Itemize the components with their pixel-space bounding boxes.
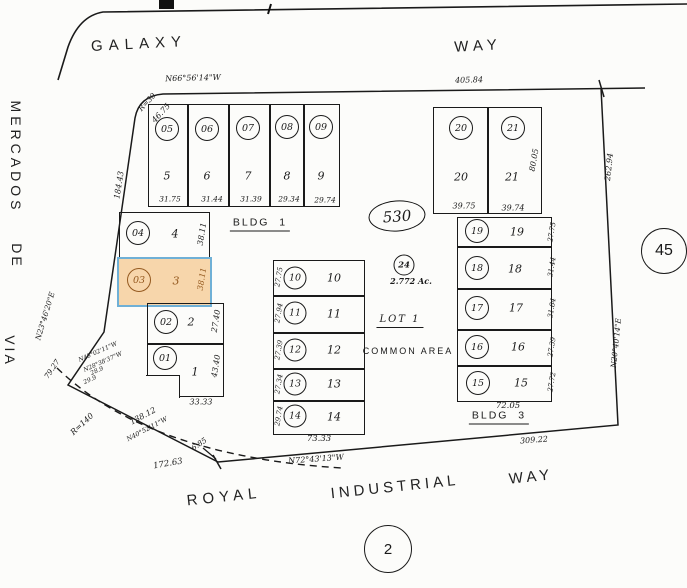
parcel-03-number: 3: [173, 275, 180, 288]
parcel-01-notch: [146, 375, 180, 398]
street-mercados: MERCADOS: [8, 101, 24, 214]
parcel-05-number: 5: [164, 170, 171, 183]
parcel-01-number: 1: [192, 366, 199, 379]
parcel-13-tag: 13: [284, 373, 307, 396]
parcel-11-number: 11: [327, 308, 341, 321]
parcel-01-tag: 01: [153, 346, 177, 370]
parcel-04-tag: 04: [126, 221, 150, 245]
parcel-04-number: 4: [172, 228, 179, 241]
page-ref-2: 2: [384, 541, 392, 558]
adjacent-map-45-circle: 45: [641, 228, 687, 274]
parcel-08-dim: 29.34: [278, 195, 299, 204]
parcel-10-number: 10: [327, 272, 341, 285]
parcel-16-number: 16: [511, 341, 525, 354]
parcel-15-number: 15: [514, 377, 528, 390]
block-b-bottom-dim: 73.33: [307, 434, 331, 444]
parcel-21-tag: 21: [501, 116, 525, 140]
parcel-15-tag: 15: [466, 371, 490, 395]
parcel-12-tag: 12: [284, 339, 307, 362]
parcel-05-dim: 31.75: [159, 195, 180, 204]
parcel-map: GALAXY WAY MERCADOS DE VIA ROYAL INDUSTR…: [0, 0, 687, 588]
common-area-label: COMMON AREA: [363, 346, 454, 356]
parcel-06-number: 6: [204, 170, 211, 183]
parcel-12-number: 12: [327, 344, 341, 357]
map-mark-square: [159, 0, 174, 9]
parcel-09-number: 9: [318, 170, 325, 183]
street-de: DE: [9, 243, 25, 268]
parcel-19-tag: 19: [465, 219, 489, 243]
street-galaxy-way: WAY: [454, 36, 502, 55]
parcel-02-number: 2: [188, 316, 195, 329]
parcel-02-tag: 02: [154, 310, 178, 334]
parcel-19-number: 19: [510, 226, 524, 239]
parcel-21-number: 21: [505, 171, 519, 184]
parcel-18-number: 18: [508, 263, 522, 276]
parcel-20-number: 20: [454, 171, 468, 184]
parcel-06-dim: 31.44: [201, 195, 222, 204]
building-1-label: BLDG 1: [230, 217, 290, 232]
common-area-acreage: 2.772 Ac.: [390, 276, 432, 286]
bearing-north: N66°56'14"W: [165, 73, 221, 83]
parcel-18-tag: 18: [465, 256, 489, 280]
parcel-20-tag: 20: [449, 116, 473, 140]
stair-bottom-dim: 33.33: [190, 398, 213, 407]
parcel-08-tag: 08: [275, 115, 299, 139]
map-book-number: 530: [382, 206, 412, 226]
building-3-label: BLDG 3: [469, 410, 529, 425]
parcel-03-tag: 03: [127, 268, 151, 292]
parcel-14-tag: 14: [284, 405, 307, 428]
parcel-08-number: 8: [284, 170, 291, 183]
parcel-07-tag: 07: [236, 116, 260, 140]
parcel-16-tag: 16: [465, 335, 489, 359]
street-via: VIA: [2, 335, 18, 367]
adjacent-map-45: 45: [655, 242, 673, 260]
parcel-06-tag: 06: [195, 117, 219, 141]
parcel-11-tag: 11: [284, 302, 307, 325]
parcel-07-number: 7: [245, 170, 252, 183]
parcel-09-dim: 29.74: [314, 196, 335, 205]
parcel-21-dim: 39.74: [502, 204, 525, 213]
common-area-tag: 24: [394, 255, 415, 276]
page-ref-2-circle: 2: [364, 525, 412, 573]
parcel-17-number: 17: [509, 302, 523, 315]
parcel-07-dim: 31.39: [240, 195, 261, 204]
parcel-10-tag: 10: [284, 267, 307, 290]
parcel-20-dim: 39.75: [453, 202, 476, 211]
dist-north: 405.84: [455, 75, 483, 85]
parcel-13-number: 13: [327, 378, 341, 391]
parcel-09-tag: 09: [309, 115, 333, 139]
parcel-14-number: 14: [327, 411, 341, 424]
dist-south: 309.22: [520, 435, 549, 446]
common-area-lot: LOT 1: [376, 314, 423, 328]
parcel-17-tag: 17: [465, 296, 489, 320]
parcel-05-tag: 05: [155, 117, 179, 141]
